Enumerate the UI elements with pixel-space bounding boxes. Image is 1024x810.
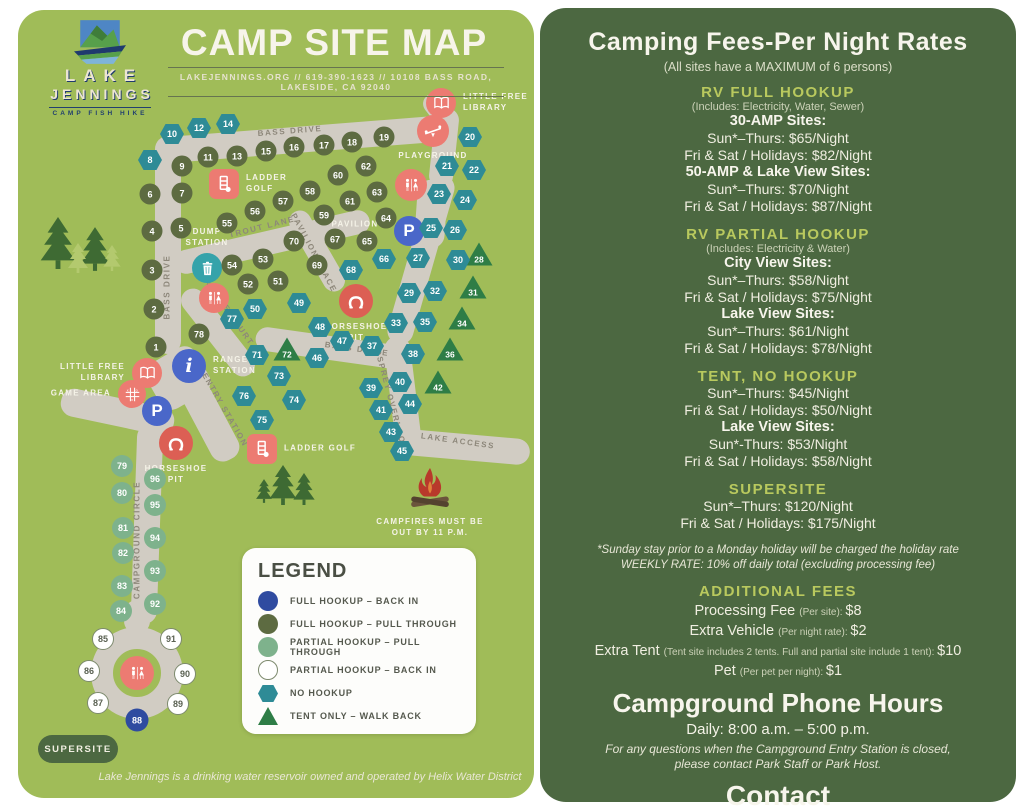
fee-line: 30-AMP Sites: <box>540 113 1016 130</box>
site-marker-58: 58 <box>300 181 321 202</box>
fees-title: Camping Fees-Per Night Rates <box>540 28 1016 57</box>
page: BASS DRIVEBASS DRIVETROUT LANEPAVILION P… <box>0 0 1024 810</box>
fee-line: Sun*-Thurs: $53/Night <box>540 436 1016 453</box>
site-marker-3: 3 <box>142 260 163 281</box>
site-marker-50: 50 <box>243 299 267 319</box>
site-marker-54: 54 <box>222 255 243 276</box>
site-marker-49: 49 <box>287 293 311 313</box>
legend-title: LEGEND <box>258 560 460 583</box>
dump-station-icon <box>192 253 222 283</box>
fee-item-label: Processing Fee <box>694 603 799 619</box>
site-marker-96: 96 <box>144 468 166 490</box>
phone-hours-daily: Daily: 8:00 a.m. – 5:00 p.m. <box>540 721 1016 738</box>
legend: LEGEND FULL HOOKUP – BACK INFULL HOOKUP … <box>242 548 476 734</box>
site-marker-31: 31 <box>460 276 487 299</box>
legend-label: TENT ONLY – WALK BACK <box>290 711 422 721</box>
pine-tree-icon <box>255 479 274 508</box>
pine-tree-icon <box>102 245 123 276</box>
fee-item-note: (Tent site includes 2 tents. Full and pa… <box>664 647 937 658</box>
legend-marker-fb <box>258 591 278 611</box>
horseshoe-pit-west: HORSESHOE PIT <box>159 426 193 460</box>
fee-line: City View Sites: <box>540 255 1016 272</box>
fee-section-subnote: (Includes: Electricity & Water) <box>540 243 1016 255</box>
legend-marker-fp <box>258 614 278 634</box>
site-marker-1: 1 <box>146 337 167 358</box>
legend-label: FULL HOOKUP – PULL THROUGH <box>290 619 457 629</box>
fee-sections: RV FULL HOOKUP(Includes: Electricity, Wa… <box>540 84 1016 532</box>
legend-item-fb: FULL HOOKUP – BACK IN <box>258 589 460 612</box>
site-marker-24: 24 <box>453 190 477 210</box>
campfire-icon <box>407 467 453 513</box>
site-marker-34: 34 <box>449 307 476 330</box>
site-marker-59: 59 <box>314 205 335 226</box>
site-marker-5: 5 <box>171 218 192 239</box>
fee-item-label: Extra Tent <box>595 643 664 659</box>
site-marker-79: 79 <box>111 455 133 477</box>
fee-item-value: $2 <box>850 623 866 639</box>
site-marker-93: 93 <box>144 560 166 582</box>
ladder-golf-north-icon <box>209 169 239 199</box>
site-marker-83: 83 <box>111 575 133 597</box>
fee-item-label: Pet <box>714 663 740 679</box>
ladder-golf-west: LADDER GOLF <box>247 434 277 464</box>
pavilion: PAVILION <box>354 224 356 226</box>
fee-item-label: Extra Vehicle <box>689 623 778 639</box>
legend-marker-pp <box>258 637 278 657</box>
site-marker-87: 87 <box>87 692 109 714</box>
site-marker-88: 88 <box>126 709 149 732</box>
road-segment <box>397 428 531 465</box>
legend-marker-nh <box>258 685 278 702</box>
pine-tree-icon <box>66 243 90 278</box>
site-marker-2: 2 <box>144 299 165 320</box>
site-marker-64: 64 <box>376 208 397 229</box>
site-marker-9: 9 <box>172 156 193 177</box>
site-marker-95: 95 <box>144 494 166 516</box>
site-marker-17: 17 <box>314 135 335 156</box>
site-marker-15: 15 <box>256 141 277 162</box>
phone-note-line: please contact Park Staff or Park Host. <box>540 757 1016 772</box>
site-marker-62: 62 <box>356 156 377 177</box>
legend-item-pp: PARTIAL HOOKUP – PULL THROUGH <box>258 635 460 658</box>
fee-note-line: *Sunday stay prior to a Monday holiday w… <box>540 543 1016 558</box>
fee-line: Lake View Sites: <box>540 419 1016 436</box>
restroom-circle-icon <box>120 656 154 690</box>
fee-item-note: (Per site): <box>799 607 845 618</box>
legend-item-to: TENT ONLY – WALK BACK <box>258 704 460 727</box>
campfire-label: CAMPFIRES MUST BE OUT BY 11 P.M. <box>376 517 483 539</box>
camp-site-map-panel: BASS DRIVEBASS DRIVETROUT LANEPAVILION P… <box>18 10 534 798</box>
fee-line: Sun*–Thurs: $58/Night <box>540 272 1016 289</box>
site-marker-26: 26 <box>443 220 467 240</box>
fee-line: Sun*–Thurs: $65/Night <box>540 130 1016 147</box>
additional-fee-item: Pet (Per pet per night): $1 <box>540 662 1016 682</box>
site-marker-92: 92 <box>144 593 166 615</box>
lake-jennings-logo: LAKE JENNINGS CAMP FISH HIKE <box>30 20 170 120</box>
fee-line: Fri & Sat / Holidays: $50/Night <box>540 402 1016 419</box>
site-marker-19: 19 <box>374 127 395 148</box>
site-marker-20: 20 <box>458 127 482 147</box>
fees-subtitle: (All sites have a MAXIMUM of 6 persons) <box>540 60 1016 74</box>
fee-line: Fri & Sat / Holidays: $175/Night <box>540 515 1016 532</box>
fee-section-subnote: (Includes: Electricity, Water, Sewer) <box>540 101 1016 113</box>
fee-item-value: $8 <box>845 603 861 619</box>
site-marker-65: 65 <box>357 231 378 252</box>
site-marker-80: 80 <box>111 482 133 504</box>
fee-note-line: WEEKLY RATE: 10% off daily total (exclud… <box>540 558 1016 573</box>
ladder-golf-west-icon <box>247 434 277 464</box>
fee-line: Fri & Sat / Holidays: $82/Night <box>540 147 1016 164</box>
fee-line: Sun*–Thurs: $120/Night <box>540 498 1016 515</box>
map-contact-strip: LAKEJENNINGS.ORG // 619-390-1623 // 1010… <box>168 67 504 97</box>
game-area-label: GAME AREA <box>51 389 111 400</box>
additional-fee-item: Extra Tent (Tent site includes 2 tents. … <box>540 642 1016 662</box>
fee-line: Sun*–Thurs: $61/Night <box>540 323 1016 340</box>
legend-label: FULL HOOKUP – BACK IN <box>290 596 419 606</box>
playground-label: PLAYGROUND <box>398 151 467 162</box>
fee-item-note: (Per pet per night): <box>740 667 826 678</box>
ranger-station: iRANGER STATION <box>172 349 206 383</box>
site-marker-66: 66 <box>372 249 396 269</box>
fee-item-value: $10 <box>937 643 961 659</box>
phone-hours-title: Campground Phone Hours <box>540 688 1016 719</box>
site-marker-56: 56 <box>245 201 266 222</box>
additional-fee-item: Extra Vehicle (Per night rate): $2 <box>540 622 1016 642</box>
restroom-mid-icon <box>199 283 229 313</box>
additional-fees-heading: ADDITIONAL FEES <box>540 583 1016 600</box>
playground: PLAYGROUND <box>417 115 449 147</box>
site-marker-53: 53 <box>253 249 274 270</box>
horseshoe-pit-north-icon <box>339 284 373 318</box>
site-marker-67: 67 <box>325 229 346 250</box>
playground-icon <box>417 115 449 147</box>
fee-section-heading: RV FULL HOOKUP <box>540 84 1016 101</box>
restroom-mid <box>199 283 229 313</box>
fees-panel: Camping Fees-Per Night Rates (All sites … <box>540 8 1016 802</box>
fee-line: 50-AMP & Lake View Sites: <box>540 164 1016 181</box>
legend-label: NO HOOKUP <box>290 688 353 698</box>
legend-marker-to <box>258 707 278 725</box>
site-marker-42: 42 <box>425 371 452 394</box>
site-marker-36: 36 <box>437 338 464 361</box>
svg-text:x: x <box>126 388 128 392</box>
site-marker-51: 51 <box>268 271 289 292</box>
fee-line: Sun*–Thurs: $70/Night <box>540 181 1016 198</box>
contact-title: Contact <box>540 780 1016 810</box>
parking-west: P <box>142 396 172 426</box>
site-marker-73: 73 <box>267 366 291 386</box>
site-marker-91: 91 <box>160 628 182 650</box>
parking-west-icon: P <box>142 396 172 426</box>
horseshoe-pit-west-icon <box>159 426 193 460</box>
fee-line: Sun*–Thurs: $45/Night <box>540 385 1016 402</box>
parking-north-icon: P <box>394 216 424 246</box>
site-marker-4: 4 <box>142 221 163 242</box>
pine-tree-icon <box>291 473 317 510</box>
horseshoe-pit-north: HORSESHOE PIT <box>339 284 373 318</box>
legend-label: PARTIAL HOOKUP – BACK IN <box>290 665 437 675</box>
fee-section: TENT, NO HOOKUPSun*–Thurs: $45/NightFri … <box>540 368 1016 470</box>
site-marker-70: 70 <box>284 231 305 252</box>
site-marker-69: 69 <box>307 255 328 276</box>
legend-item-pb: PARTIAL HOOKUP – BACK IN <box>258 658 460 681</box>
site-marker-39: 39 <box>359 378 383 398</box>
fee-notes: *Sunday stay prior to a Monday holiday w… <box>540 543 1016 573</box>
fee-item-note: (Per night rate): <box>778 627 850 638</box>
site-marker-6: 6 <box>140 184 161 205</box>
svg-text:o: o <box>135 388 137 392</box>
additional-fee-items: Processing Fee (Per site): $8Extra Vehic… <box>540 602 1016 682</box>
fee-section: RV FULL HOOKUP(Includes: Electricity, Wa… <box>540 84 1016 215</box>
site-marker-81: 81 <box>112 517 134 539</box>
ladder-golf-north: LADDER GOLF <box>209 169 239 199</box>
site-marker-89: 89 <box>167 693 189 715</box>
site-marker-57: 57 <box>273 191 294 212</box>
campfire: CAMPFIRES MUST BE OUT BY 11 P.M. <box>407 467 453 513</box>
dump-station: DUMP STATION <box>192 253 222 283</box>
lake-jennings-logo-icon <box>74 20 126 64</box>
legend-item-fp: FULL HOOKUP – PULL THROUGH <box>258 612 460 635</box>
site-marker-76: 76 <box>232 386 256 406</box>
legend-label: PARTIAL HOOKUP – PULL THROUGH <box>290 637 460 657</box>
restroom-circle <box>120 656 154 690</box>
ranger-station-icon: i <box>172 349 206 383</box>
site-marker-61: 61 <box>340 191 361 212</box>
supersite-badge: SUPERSITE <box>38 735 118 763</box>
site-marker-86: 86 <box>78 660 100 682</box>
additional-fee-item: Processing Fee (Per site): $8 <box>540 602 1016 622</box>
site-marker-90: 90 <box>174 663 196 685</box>
parking-north: P <box>394 216 424 246</box>
map-footer-note: Lake Jennings is a drinking water reserv… <box>80 771 534 783</box>
site-marker-75: 75 <box>250 410 274 430</box>
site-marker-55: 55 <box>217 213 238 234</box>
fee-line: Fri & Sat / Holidays: $78/Night <box>540 340 1016 357</box>
site-marker-30: 30 <box>446 250 470 270</box>
restroom-north <box>395 169 427 201</box>
little-free-library-west-label: LITTLE FREE LIBRARY <box>60 362 125 384</box>
logo-tagline: CAMP FISH HIKE <box>49 107 152 117</box>
map-title: CAMP SITE MAP <box>158 22 510 64</box>
road-label: CAMPGROUND CIRCLE <box>133 481 142 599</box>
fee-line: Fri & Sat / Holidays: $87/Night <box>540 198 1016 215</box>
site-marker-28: 28 <box>466 243 493 266</box>
site-marker-74: 74 <box>282 390 306 410</box>
phone-hours-note: For any questions when the Campground En… <box>540 742 1016 772</box>
fee-section: SUPERSITESun*–Thurs: $120/NightFri & Sat… <box>540 481 1016 532</box>
site-marker-84: 84 <box>110 600 132 622</box>
svg-text:x: x <box>131 397 133 401</box>
phone-note-line: For any questions when the Campground En… <box>540 742 1016 757</box>
site-marker-18: 18 <box>342 132 363 153</box>
fee-item-value: $1 <box>826 663 842 679</box>
fee-section: RV PARTIAL HOOKUP(Includes: Electricity … <box>540 226 1016 357</box>
legend-item-nh: NO HOOKUP <box>258 681 460 704</box>
fee-section-heading: SUPERSITE <box>540 481 1016 498</box>
restroom-north-icon <box>395 169 427 201</box>
fee-line: Fri & Sat / Holidays: $58/Night <box>540 453 1016 470</box>
site-marker-94: 94 <box>144 527 166 549</box>
site-marker-22: 22 <box>462 160 486 180</box>
site-marker-63: 63 <box>367 182 388 203</box>
legend-items: FULL HOOKUP – BACK INFULL HOOKUP – PULL … <box>258 589 460 727</box>
logo-text-lake: LAKE <box>30 66 170 86</box>
site-marker-60: 60 <box>328 165 349 186</box>
fee-section-heading: RV PARTIAL HOOKUP <box>540 226 1016 243</box>
fee-section-heading: TENT, NO HOOKUP <box>540 368 1016 385</box>
site-marker-16: 16 <box>284 137 305 158</box>
site-marker-13: 13 <box>227 146 248 167</box>
site-marker-82: 82 <box>112 542 134 564</box>
site-marker-11: 11 <box>198 147 219 168</box>
logo-text-jennings: JENNINGS <box>30 86 170 102</box>
site-marker-52: 52 <box>238 274 259 295</box>
legend-marker-pb <box>258 660 278 680</box>
fee-line: Fri & Sat / Holidays: $75/Night <box>540 289 1016 306</box>
site-marker-78: 78 <box>189 324 210 345</box>
fee-line: Lake View Sites: <box>540 306 1016 323</box>
site-marker-85: 85 <box>92 628 114 650</box>
ladder-golf-west-label: LADDER GOLF <box>284 444 356 455</box>
site-marker-7: 7 <box>172 183 193 204</box>
